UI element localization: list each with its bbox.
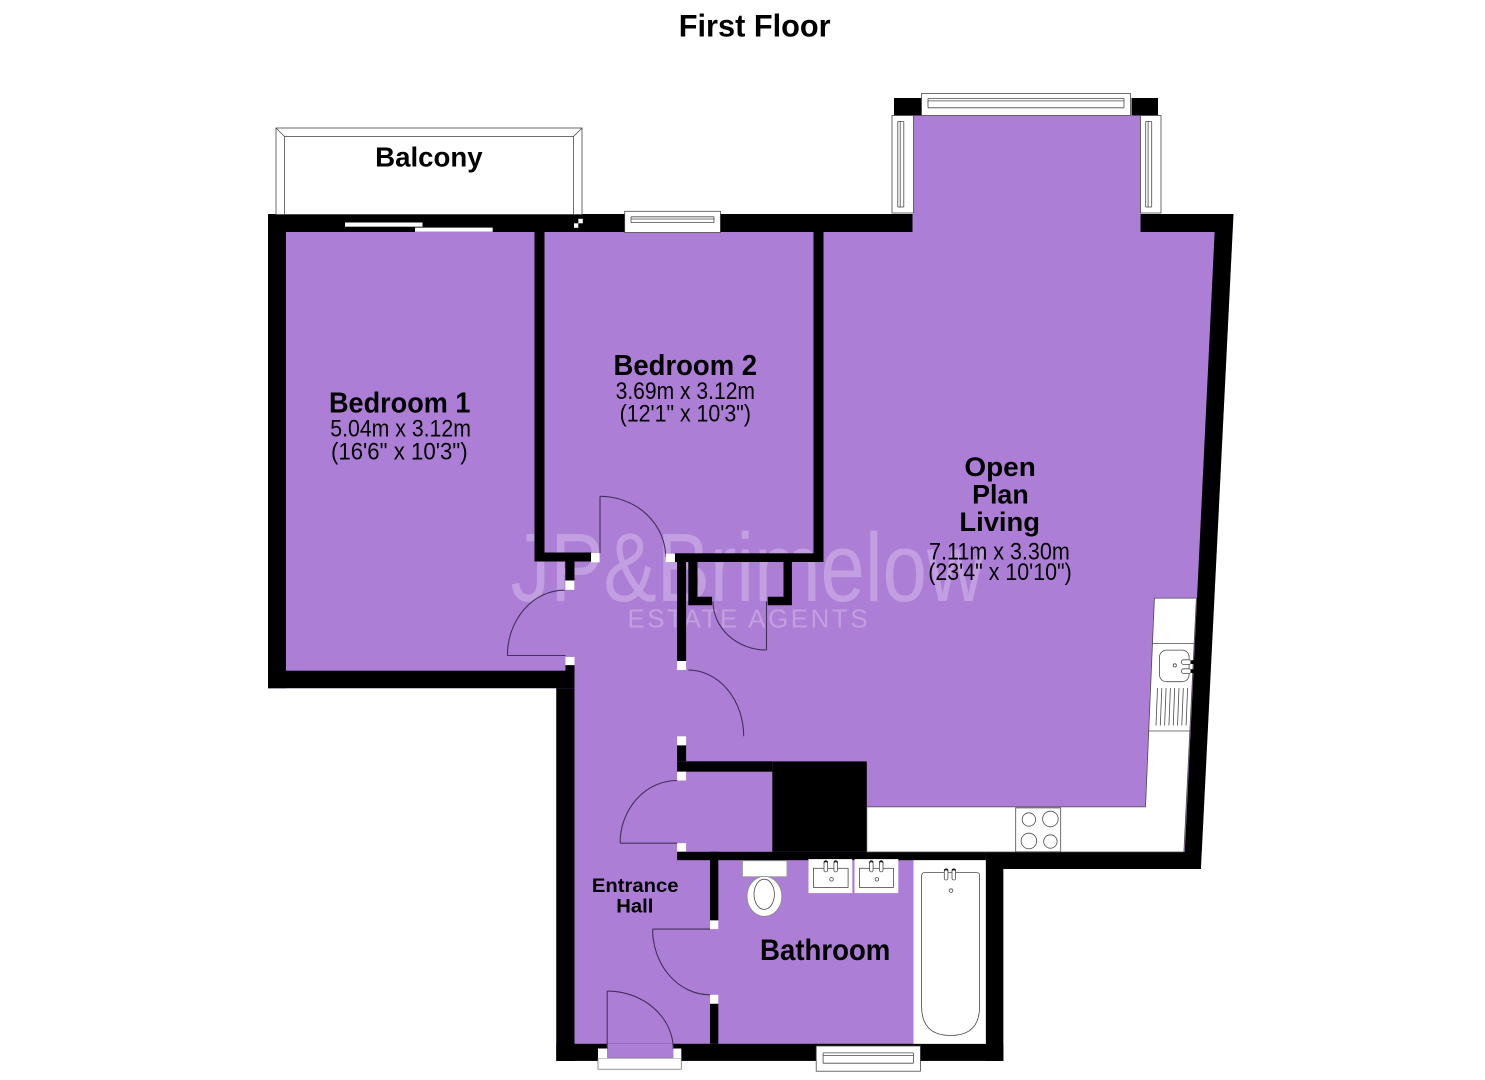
svg-text:Plan: Plan (972, 479, 1029, 510)
svg-text:Hall: Hall (616, 896, 653, 918)
svg-text:Entrance: Entrance (592, 875, 679, 897)
svg-text:(23'4" x 10'10"): (23'4" x 10'10") (928, 559, 1072, 586)
svg-text:Bathroom: Bathroom (760, 934, 890, 967)
svg-text:(12'1" x 10'3"): (12'1" x 10'3") (620, 400, 751, 427)
svg-text:First Floor: First Floor (679, 8, 831, 43)
svg-text:Living: Living (959, 506, 1040, 537)
svg-text:Bedroom 2: Bedroom 2 (614, 350, 758, 382)
svg-text:Balcony: Balcony (375, 142, 483, 173)
svg-text:(16'6" x 10'3"): (16'6" x 10'3") (331, 438, 468, 465)
svg-text:Open: Open (964, 451, 1035, 482)
svg-text:Bedroom 1: Bedroom 1 (329, 387, 470, 419)
svg-text:ESTATE AGENTS: ESTATE AGENTS (627, 606, 867, 634)
